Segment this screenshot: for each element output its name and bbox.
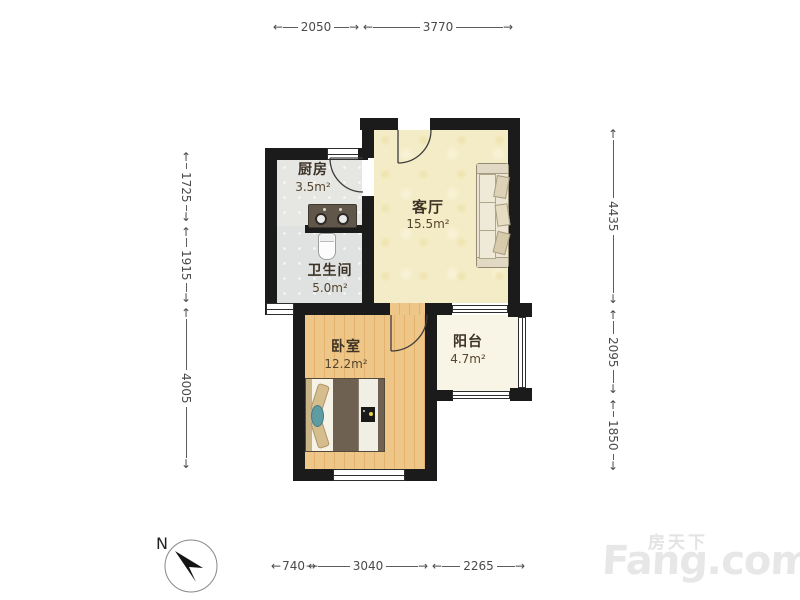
dim-bottom-1: ← 740 → (271, 558, 307, 574)
arrow-down-icon: ↓ (608, 293, 618, 305)
dim-line (456, 27, 503, 28)
bed-blanket-edge (378, 379, 385, 451)
dim-line (318, 566, 350, 567)
wall (437, 390, 453, 401)
bedroom-window (333, 469, 405, 481)
arrow-up-icon: ↑ (608, 128, 618, 140)
bathroom-window (266, 303, 294, 315)
dim-line (386, 566, 418, 567)
wall (508, 303, 532, 317)
arrow-down-icon: ↓ (608, 383, 618, 395)
tv (361, 407, 375, 422)
wall (425, 303, 437, 473)
dim-bottom-3: ← 2265 → (432, 558, 525, 574)
dim-bottom-2: ← 3040 → (308, 558, 428, 574)
stove-burner (337, 213, 349, 225)
dim-left-2: ↑ 1915 ↓ (178, 226, 194, 304)
wall (265, 148, 277, 315)
dim-line (613, 411, 614, 417)
arrow-right-icon: → (418, 560, 428, 572)
dim-left-3: ↑ 4005 ↓ (178, 307, 194, 470)
arrow-left-icon: ← (432, 560, 442, 572)
floorplan-page: 厨房 3.5m² 客厅 15.5m² 卫生间 5.0m² 卧室 12.2m² 阳… (0, 0, 800, 600)
dim-line (186, 238, 187, 247)
dim-right-2: ↑ 2095 ↓ (605, 309, 621, 395)
arrow-right-icon: → (349, 21, 359, 33)
wall (362, 196, 374, 308)
stove-knob (323, 208, 326, 211)
room-label-living: 客厅 15.5m² (406, 198, 449, 232)
sofa-seat (479, 174, 496, 203)
kitchen-window (327, 148, 360, 160)
dim-label: 4435 (606, 201, 620, 232)
room-area: 3.5m² (295, 179, 331, 194)
balcony-bottom-window (452, 391, 510, 399)
arrow-down-icon: ↓ (608, 460, 618, 472)
arrow-right-icon: → (515, 560, 525, 572)
dim-label: 1725 (179, 172, 193, 203)
wall (362, 118, 374, 158)
dim-line (613, 235, 614, 293)
dim-top-1: ← 2050 → (273, 19, 359, 35)
toilet-tank (320, 235, 334, 242)
room-area: 4.7m² (450, 351, 486, 366)
arrow-down-icon: ↓ (181, 211, 191, 223)
dim-line (373, 27, 420, 28)
arrow-up-icon: ↑ (181, 307, 191, 319)
room-label-bedroom: 卧室 12.2m² (324, 339, 367, 372)
arrow-down-icon: ↓ (181, 458, 191, 470)
dim-line (613, 321, 614, 334)
sofa-cushion (495, 203, 511, 227)
bedroom-door-patch (390, 303, 427, 315)
arrow-up-icon: ↑ (608, 309, 618, 321)
wall (294, 303, 390, 315)
bed-blanket (333, 379, 358, 451)
room-label-kitchen: 厨房 3.5m² (295, 162, 331, 195)
dim-right-1: ↑ 4435 ↓ (605, 128, 621, 305)
wall (293, 469, 333, 481)
room-name: 卫生间 (308, 263, 353, 281)
dim-line (186, 163, 187, 169)
dim-label: 2265 (463, 559, 494, 573)
room-name: 客厅 (406, 198, 449, 217)
wall (508, 118, 520, 310)
tv-light (363, 410, 365, 412)
arrow-left-icon: ← (271, 560, 281, 572)
stove-burner (315, 213, 327, 225)
dim-label: 2050 (301, 20, 332, 34)
dim-right-3: ↑ 1850 ↓ (605, 399, 621, 472)
arrow-down-icon: ↓ (181, 292, 191, 304)
dim-label: 2095 (606, 337, 620, 368)
room-area: 5.0m² (308, 280, 353, 295)
compass-needle-icon (175, 551, 203, 582)
room-name: 阳台 (450, 334, 486, 352)
watermark-brand: Fang.com (601, 538, 800, 584)
arrow-right-icon: → (503, 21, 513, 33)
dim-label: 740 (282, 559, 305, 573)
stove (308, 204, 357, 228)
arrow-up-icon: ↑ (608, 399, 618, 411)
arrow-left-icon: ← (273, 21, 283, 33)
dim-label: 3770 (423, 20, 454, 34)
room-area: 15.5m² (406, 217, 449, 232)
wall (293, 315, 305, 481)
sofa-armrest (477, 164, 508, 174)
room-name: 卧室 (324, 339, 367, 357)
dim-top-2: ← 3770 → (363, 19, 513, 35)
sofa-seat (479, 202, 496, 231)
dim-label: 1850 (606, 420, 620, 451)
toilet (318, 233, 336, 260)
wall (405, 469, 437, 481)
room-name: 厨房 (295, 162, 331, 180)
balcony-top-window (452, 305, 508, 313)
dim-line (186, 407, 187, 458)
room-label-balcony: 阳台 4.7m² (450, 334, 486, 367)
sofa (476, 163, 509, 268)
dim-line (442, 566, 460, 567)
tv-light (369, 412, 373, 416)
arrow-up-icon: ↑ (181, 226, 191, 238)
dim-label: 4005 (179, 373, 193, 404)
dim-line (283, 27, 298, 28)
dim-line (334, 27, 349, 28)
room-label-bathroom: 卫生间 5.0m² (308, 263, 353, 296)
stove-knob (339, 208, 342, 211)
dim-line (186, 319, 187, 370)
balcony-right-window (518, 317, 526, 388)
fang-watermark: 房天下 Fang.com (600, 526, 798, 592)
arrow-left-icon: ← (363, 21, 373, 33)
compass-north-label: N (156, 534, 168, 553)
wall (430, 118, 520, 130)
sofa-cushion (493, 175, 510, 199)
dim-left-1: ↑ 1725 ↓ (178, 151, 194, 223)
wall (510, 388, 532, 401)
dim-line (497, 566, 515, 567)
room-area: 12.2m² (324, 356, 367, 371)
arrow-up-icon: ↑ (181, 151, 191, 163)
dim-label: 3040 (353, 559, 384, 573)
dim-label: 1915 (179, 250, 193, 281)
arrow-left-icon: ← (308, 560, 318, 572)
bed (305, 378, 385, 452)
dim-line (613, 140, 614, 198)
bed-throw-pillow (311, 405, 324, 427)
compass: N (148, 528, 228, 594)
